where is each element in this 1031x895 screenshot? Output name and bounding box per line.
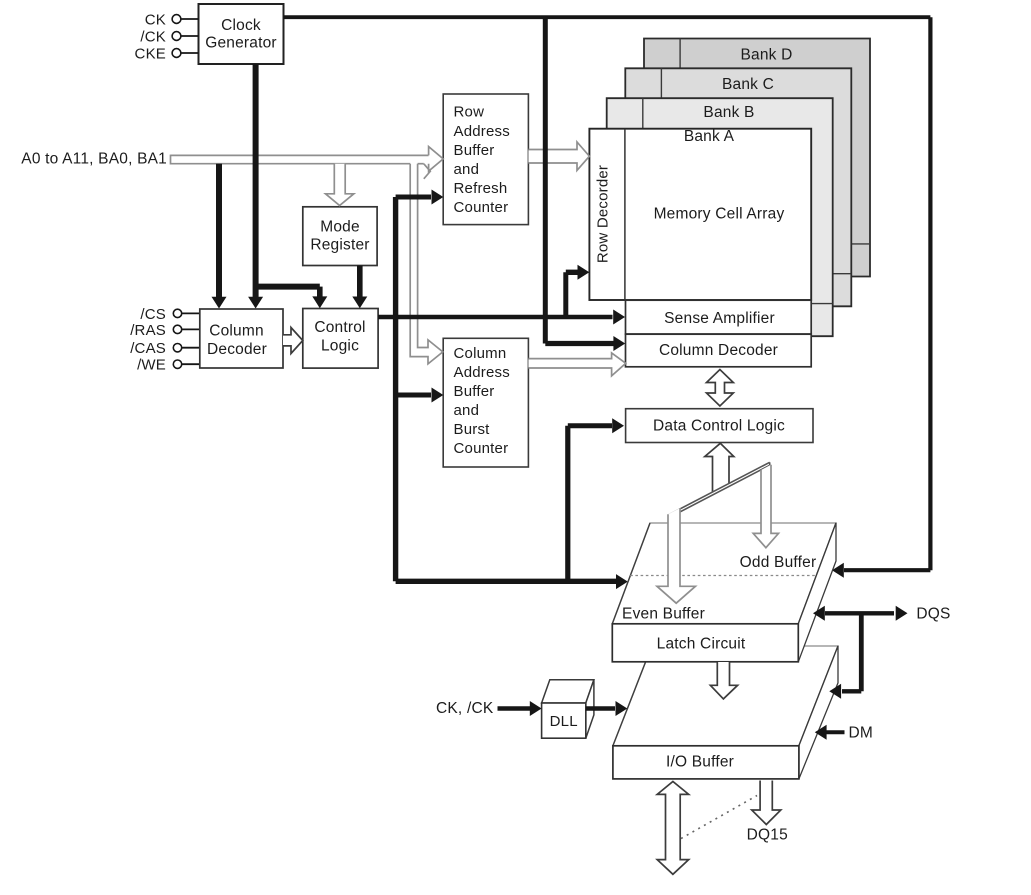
svg-text:Counter: Counter <box>454 440 509 457</box>
svg-text:Column: Column <box>209 323 264 340</box>
svg-text:Sense Amplifier: Sense Amplifier <box>664 310 775 327</box>
svg-text:Control: Control <box>314 319 365 336</box>
svg-text:Clock: Clock <box>221 17 261 34</box>
svg-text:Bank B: Bank B <box>703 104 754 121</box>
svg-text:Address: Address <box>454 123 510 140</box>
svg-text:A0 to A11, BA0, BA1: A0 to A11, BA0, BA1 <box>21 151 167 168</box>
svg-text:Latch Circuit: Latch Circuit <box>657 635 746 652</box>
svg-text:Buffer: Buffer <box>454 383 495 400</box>
svg-text:CKE: CKE <box>135 46 166 63</box>
svg-text:Bank A: Bank A <box>684 128 735 145</box>
svg-text:Buffer: Buffer <box>454 142 495 159</box>
svg-text:DLL: DLL <box>550 713 578 730</box>
svg-text:/RAS: /RAS <box>130 322 166 339</box>
svg-text:/WE: /WE <box>137 357 166 374</box>
svg-text:Column: Column <box>454 345 507 362</box>
svg-text:Row: Row <box>454 104 485 121</box>
svg-text:Memory Cell Array: Memory Cell Array <box>654 205 785 222</box>
svg-text:Odd Buffer: Odd Buffer <box>740 554 817 571</box>
svg-text:DQS: DQS <box>916 605 950 622</box>
svg-text:and: and <box>454 161 480 178</box>
svg-text:/CAS: /CAS <box>130 340 166 357</box>
svg-text:Bank C: Bank C <box>722 76 774 93</box>
svg-text:Counter: Counter <box>454 199 509 216</box>
svg-text:Row Decorder: Row Decorder <box>595 165 612 263</box>
svg-text:and: and <box>454 402 480 419</box>
svg-text:Even Buffer: Even Buffer <box>622 605 705 622</box>
svg-text:Data Control Logic: Data Control Logic <box>653 418 785 435</box>
svg-text:Column Decoder: Column Decoder <box>659 342 778 359</box>
svg-text:/CS: /CS <box>140 306 166 323</box>
svg-text:Burst: Burst <box>454 421 491 438</box>
svg-text:Logic: Logic <box>321 337 359 354</box>
svg-text:Address: Address <box>454 364 510 381</box>
svg-text:DQ15: DQ15 <box>747 826 788 843</box>
svg-text:/CK: /CK <box>140 29 166 46</box>
svg-text:CK, /CK: CK, /CK <box>436 700 494 717</box>
svg-text:Register: Register <box>310 237 369 254</box>
svg-text:I/O Buffer: I/O Buffer <box>666 753 734 770</box>
svg-text:Refresh: Refresh <box>454 180 508 197</box>
svg-text:CK: CK <box>145 12 166 29</box>
svg-text:Mode: Mode <box>320 218 360 235</box>
svg-text:DM: DM <box>849 724 874 741</box>
svg-text:Bank D: Bank D <box>740 46 792 63</box>
svg-text:Generator: Generator <box>205 35 277 52</box>
svg-text:Decoder: Decoder <box>207 341 267 358</box>
